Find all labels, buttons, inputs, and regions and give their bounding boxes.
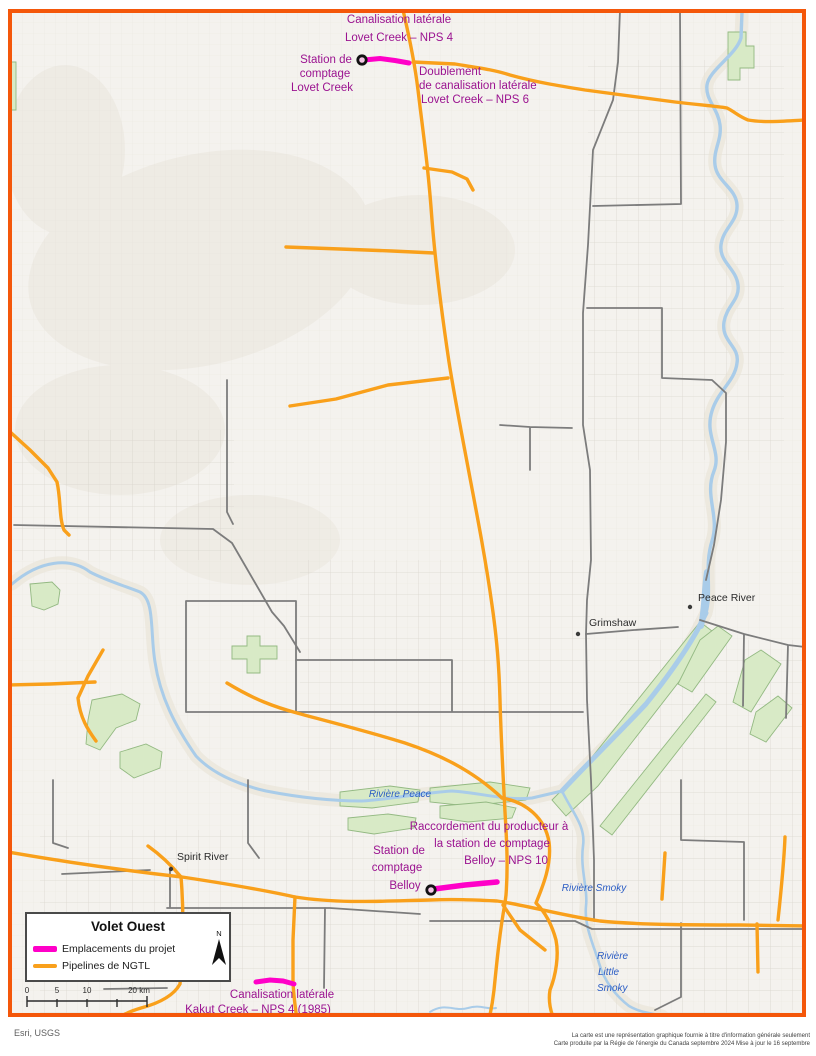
- disclaimer-line-1: La carte est une représentation graphiqu…: [554, 1032, 810, 1040]
- annotation-doublement-3: Lovet Creek – NPS 6: [421, 94, 529, 108]
- legend-box: Volet Ouest Emplacements du projet Pipel…: [25, 912, 231, 982]
- annotation-lovet-lateral-1: Canalisation latérale: [347, 14, 451, 28]
- project-line-swatch: [33, 946, 57, 952]
- annotation-lovet-station-1: Station de: [300, 54, 352, 68]
- scale-label-20km: 20 km: [128, 986, 150, 995]
- scale-label-0: 0: [25, 986, 29, 995]
- scale-label-10: 10: [83, 986, 92, 995]
- river-label-little-smoky-1: Rivière: [597, 951, 628, 963]
- legend-item-project: Emplacements du projet: [33, 943, 175, 955]
- town-label-grimshaw: Grimshaw: [589, 617, 636, 629]
- belloy-station-marker: [427, 886, 435, 894]
- grimshaw-dot: [576, 632, 580, 636]
- annotation-doublement-1: Doublement: [419, 66, 481, 80]
- annotation-belloy-station-1: Station de: [373, 845, 425, 859]
- river-label-little-smoky-2: Little: [598, 967, 619, 979]
- lovet-station-marker: [358, 56, 366, 64]
- map-canvas: [0, 0, 816, 1056]
- river-label-little-smoky-3: Smoky: [597, 983, 628, 995]
- annotation-raccordement-1: Raccordement du producteur à: [410, 821, 569, 835]
- annotation-kakut-2: Kakut Creek – NPS 4 (1985): [185, 1004, 331, 1018]
- scale-label-5: 5: [55, 986, 59, 995]
- annotation-belloy-station-2: comptage: [372, 862, 423, 876]
- spirit-river-dot: [169, 867, 173, 871]
- pipeline-line-swatch: [33, 964, 57, 969]
- legend-item-pipeline: Pipelines de NGTL: [33, 960, 150, 972]
- town-label-peace-river: Peace River: [698, 592, 755, 604]
- annotation-belloy-station-3: Belloy: [389, 880, 420, 894]
- legend-item-label: Emplacements du projet: [62, 943, 175, 955]
- north-arrow: N: [208, 930, 230, 972]
- north-arrow-icon: [208, 937, 230, 967]
- annotation-lovet-station-3: Lovet Creek: [291, 82, 353, 96]
- annotation-doublement-2: de canalisation latérale: [419, 80, 537, 94]
- annotation-lovet-station-2: comptage: [300, 68, 351, 82]
- disclaimer-line-2: Carte produite par la Régie de l'énergie…: [554, 1040, 810, 1048]
- legend-title: Volet Ouest: [27, 919, 229, 934]
- basemap-credit: Esri, USGS: [14, 1028, 60, 1038]
- annotation-lovet-lateral-2: Lovet Creek – NPS 4: [345, 32, 453, 46]
- river-label-smoky: Rivière Smoky: [562, 883, 626, 895]
- annotation-raccordement-2: la station de comptage: [434, 838, 550, 852]
- disclaimer: La carte est une représentation graphiqu…: [554, 1032, 810, 1048]
- annotation-raccordement-3: Belloy – NPS 10: [464, 855, 548, 869]
- legend-item-label: Pipelines de NGTL: [62, 960, 150, 972]
- river-label-peace: Rivière Peace: [369, 789, 431, 801]
- map-page: Canalisation latérale Lovet Creek – NPS …: [0, 0, 816, 1056]
- peace-river-dot: [688, 605, 692, 609]
- north-label: N: [208, 930, 230, 937]
- town-label-spirit-river: Spirit River: [177, 851, 228, 863]
- annotation-kakut-1: Canalisation latérale: [230, 989, 334, 1003]
